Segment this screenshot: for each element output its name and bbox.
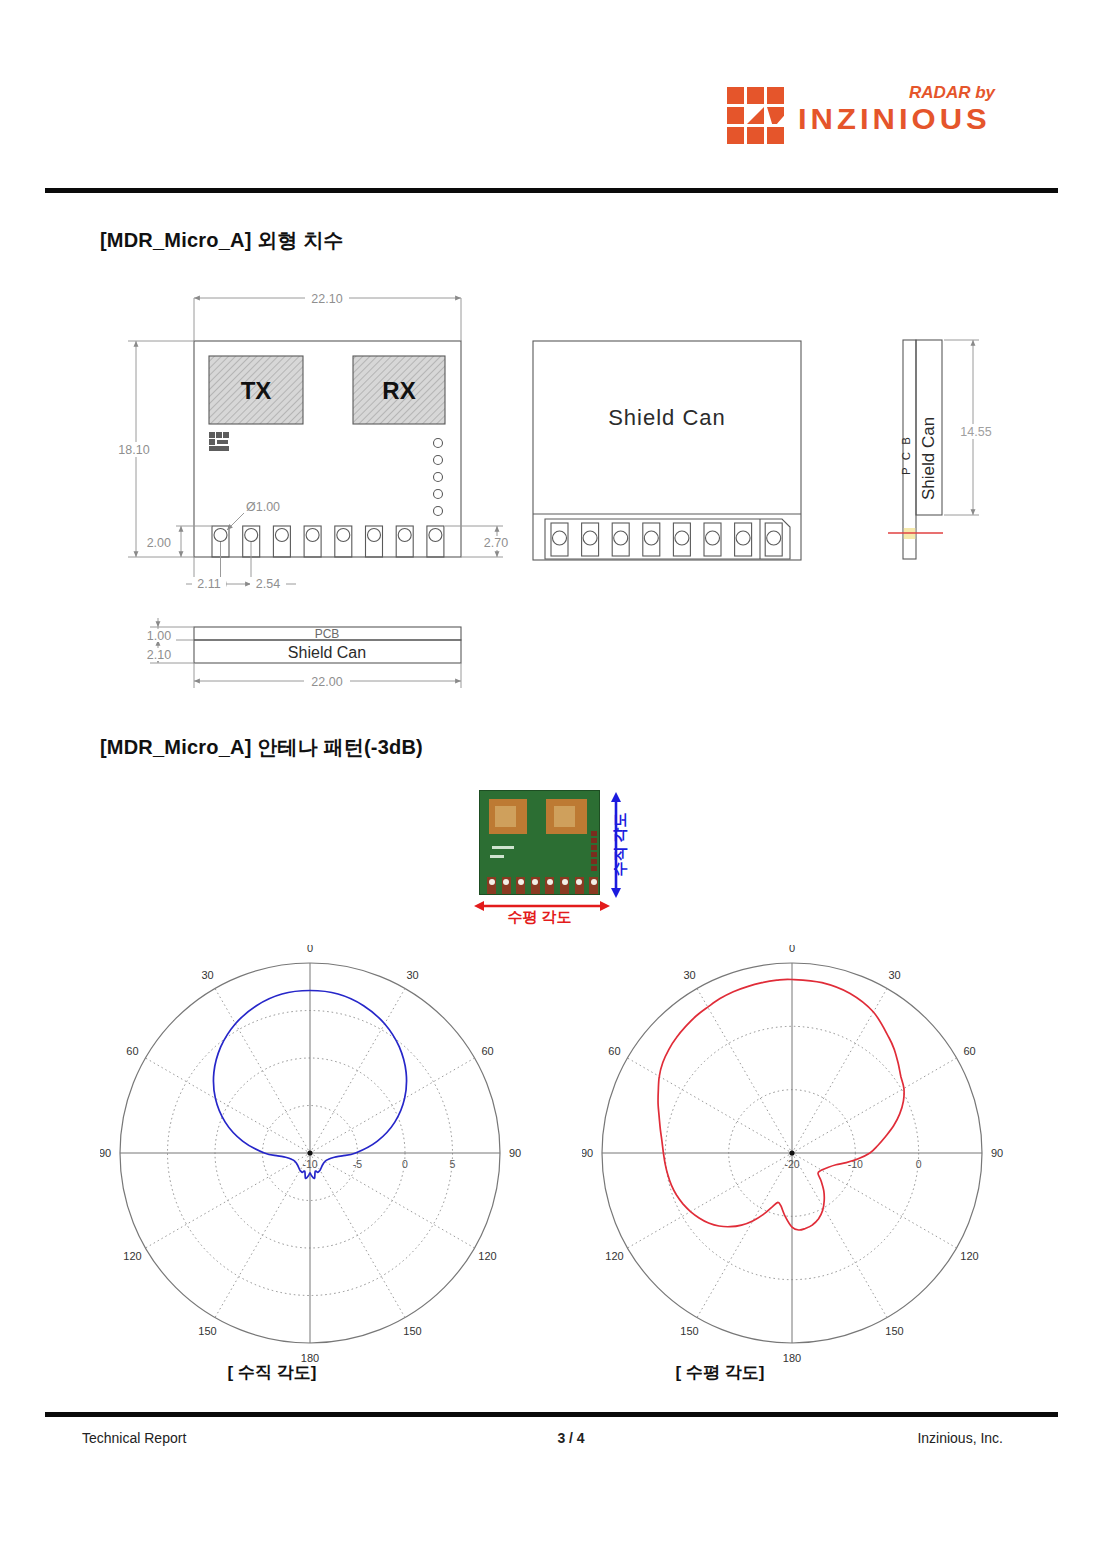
radial-tick-label: -5 — [353, 1158, 362, 1170]
horizontal-angle-pattern-svg: 0303060609090120120150150180-20-100 — [582, 945, 1006, 1385]
pcb-photo-side-pad — [591, 831, 597, 836]
angle-tick-label: 150 — [403, 1325, 421, 1337]
horizontal-chart-caption: [ 수평 각도] — [640, 1361, 800, 1384]
angle-tick-label: 0 — [307, 945, 313, 954]
pcb-photo-pad — [516, 877, 525, 894]
angle-tick-label: 150 — [885, 1325, 903, 1337]
center-dot — [789, 1150, 794, 1155]
brand-logo — [727, 87, 784, 144]
pcb-photo-side-pad — [591, 866, 597, 871]
angle-tick-label: 90 — [582, 1147, 593, 1159]
angle-tick-label: 120 — [123, 1250, 141, 1262]
footer-left: Technical Report — [82, 1430, 186, 1446]
angle-tick-label: 30 — [406, 969, 418, 981]
antenna-section-title: [MDR_Micro_A] 안테나 패턴(-3dB) — [100, 734, 423, 761]
shield-can-view — [533, 341, 801, 560]
pcb-photo-pad — [560, 877, 569, 894]
pad-height-dim: 2.00 — [147, 536, 171, 550]
tx-label: TX — [241, 377, 272, 404]
footer-page-number: 3 / 4 — [471, 1430, 671, 1446]
angle-tick-label: 30 — [201, 969, 213, 981]
angle-tick-label: 30 — [888, 969, 900, 981]
footer-rule — [45, 1412, 1058, 1417]
shield-view-pads — [551, 523, 782, 556]
shield-can-label: Shield Can — [608, 405, 726, 430]
pitch-dim-2: 2.54 — [256, 577, 280, 591]
side-pcb-label: P C B — [900, 435, 912, 475]
horizontal-pattern-chart: 0303060609090120120150150180-20-100 — [582, 945, 1006, 1385]
angle-tick-label: 90 — [509, 1147, 521, 1159]
angle-tick-label: 120 — [960, 1250, 978, 1262]
pcb-photo-pad — [545, 877, 554, 894]
pcb-photo-pad — [502, 877, 511, 894]
side-height-dim: 14.55 — [960, 425, 991, 439]
radial-tick-label: 0 — [916, 1158, 922, 1170]
brand-tagline: RADAR by — [860, 83, 995, 103]
pcb-photo-side-pad — [591, 838, 597, 843]
angle-tick-label: 30 — [683, 969, 695, 981]
header-rule — [45, 188, 1058, 193]
angle-tick-label: 90 — [100, 1147, 111, 1159]
report-page: RADAR by INZINIOUS [MDR_Micro_A] 외형 치수 — [0, 0, 1100, 1548]
pcb-photo — [479, 790, 600, 895]
dimension-drawing: TX RX 22.10 18.10 2.00 Ø1.00 2.11 — [0, 280, 1100, 710]
front-width-dim: 22.10 — [311, 292, 342, 306]
angle-tick-label: 150 — [680, 1325, 698, 1337]
front-view — [194, 341, 461, 557]
front-height-dim: 18.10 — [118, 443, 149, 457]
vertical-angle-pattern-svg: 0303060609090120120150150180-10-505 — [100, 945, 524, 1385]
pattern-curve — [658, 979, 904, 1230]
side-shield-label: Shield Can — [919, 417, 938, 500]
pcb-photo-pad — [589, 877, 598, 894]
front-right-dim: 2.70 — [484, 536, 508, 550]
angle-tick-label: 60 — [608, 1045, 620, 1057]
pcb-photo-side-pad — [591, 859, 597, 864]
angle-tick-label: 60 — [126, 1045, 138, 1057]
radial-tick-label: -10 — [302, 1158, 317, 1170]
antenna-patch-right — [546, 799, 587, 834]
via-holes — [434, 439, 443, 516]
pcb-photo-pad — [487, 877, 496, 894]
stack-shield-dim: 2.10 — [147, 648, 171, 662]
silkscreen-logo-icon — [209, 432, 229, 451]
angle-tick-label: 60 — [481, 1045, 493, 1057]
angle-tick-label: 120 — [605, 1250, 623, 1262]
pcb-photo-side-pad — [591, 845, 597, 850]
pcb-photo-pad — [531, 877, 540, 894]
antenna-patch-left — [489, 799, 527, 834]
pcb-photo-pad — [575, 877, 584, 894]
pitch-dim-1: 2.11 — [197, 577, 220, 591]
front-view-dimensions — [128, 298, 503, 590]
angle-tick-label: 60 — [963, 1045, 975, 1057]
vertical-pattern-chart: 0303060609090120120150150180-10-505 — [100, 945, 524, 1385]
radial-tick-label: 5 — [450, 1158, 456, 1170]
angle-tick-label: 90 — [991, 1147, 1003, 1159]
vertical-chart-caption: [ 수직 각도] — [192, 1361, 352, 1384]
center-dot — [307, 1150, 312, 1155]
radial-tick-label: 0 — [402, 1158, 408, 1170]
front-pads — [212, 526, 444, 557]
horizontal-angle-label: 수평 각도 — [479, 908, 600, 927]
stack-width-dim: 22.00 — [311, 675, 342, 689]
brand-name: INZINIOUS — [798, 102, 991, 137]
radial-tick-label: -20 — [784, 1158, 799, 1170]
rx-label: RX — [382, 377, 415, 404]
footer-right: Inzinious, Inc. — [917, 1430, 1003, 1446]
pcb-photo-side-pad — [591, 852, 597, 857]
angle-tick-label: 0 — [789, 945, 795, 954]
angle-tick-label: 150 — [198, 1325, 216, 1337]
inzinious-logo-icon — [727, 87, 784, 144]
stack-shield-label: Shield Can — [288, 644, 366, 661]
stack-pcb-label: PCB — [315, 627, 340, 641]
angle-tick-label: 120 — [478, 1250, 496, 1262]
stack-pcb-dim: 1.00 — [147, 629, 171, 643]
hole-diameter-dim: Ø1.00 — [246, 500, 280, 514]
vertical-angle-label: 수직 각도 — [611, 812, 630, 876]
dimensions-section-title: [MDR_Micro_A] 외형 치수 — [100, 227, 344, 254]
